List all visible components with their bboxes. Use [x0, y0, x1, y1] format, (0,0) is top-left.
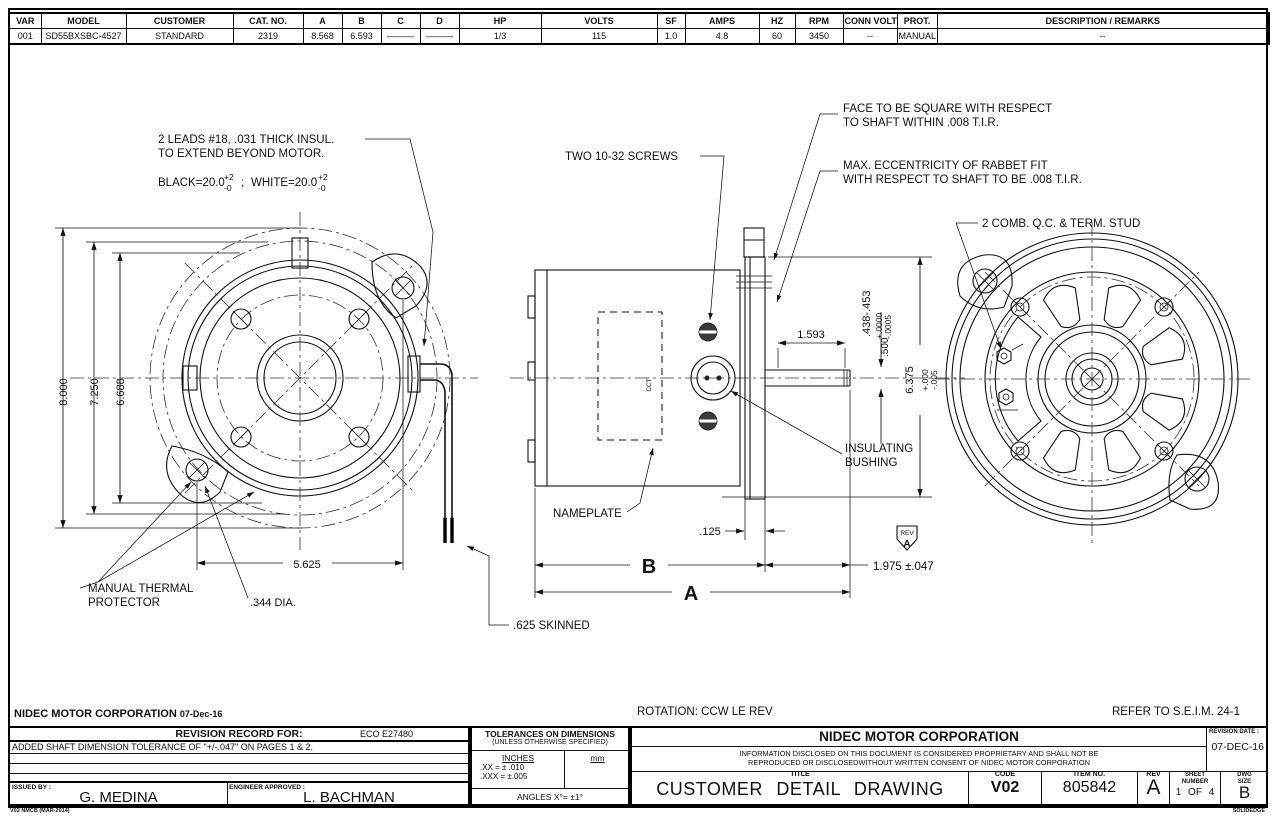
leads-black: BLACK=20.0: [158, 177, 225, 189]
sheet-label-1: SHEET: [1170, 771, 1220, 779]
insulating-label-1: INSULATING: [845, 443, 913, 455]
item-no-label: ITEM NO.: [1042, 771, 1137, 779]
mounting-flange: [736, 228, 772, 499]
mm-label: mm: [590, 753, 604, 763]
tolerance-xx: .XX = ± .010: [472, 763, 564, 772]
revision-flag-letter: A: [903, 539, 910, 550]
leads-semicolon: ;: [241, 177, 244, 189]
dim-1593: 1.593: [797, 329, 825, 341]
terminal-studs: [997, 344, 1023, 410]
dim-7250: 7.250: [89, 378, 101, 406]
leads-line-2: TO EXTEND BEYOND MOTOR.: [158, 148, 324, 160]
title-block-company: NIDEC MOTOR CORPORATION: [632, 728, 1207, 747]
engineer-approved-label: ENGINEER APPROVED :: [229, 784, 305, 791]
tolerances-block: TOLERANCES ON DIMENSIONS (UNLESS OTHERWI…: [470, 726, 630, 806]
leads-black-tol-minus: -0: [224, 183, 232, 193]
dim-438-tol-minus: -.0005: [883, 315, 893, 339]
revision-empty-row: [10, 774, 468, 783]
side-dimensions: 1.593 .438-.453 +.0000 -.0005 .500 6.375…: [535, 257, 939, 605]
revision-flag-label: REV: [900, 530, 914, 537]
issued-by-label: ISSUED BY :: [12, 784, 51, 791]
revision-entry: ADDED SHAFT DIMENSION TOLERANCE OF "+/-.…: [10, 742, 468, 754]
eco-number: ECO E27480: [360, 729, 413, 739]
tolerances-title: TOLERANCES ON DIMENSIONS: [472, 728, 628, 739]
thermal-label-1: MANUAL THERMAL: [88, 583, 194, 595]
sheet-value: 1 OF 4: [1170, 785, 1220, 798]
leads-black-tol-plus: +2: [224, 172, 234, 182]
title-block: NIDEC MOTOR CORPORATION REVISION DATE : …: [630, 726, 1268, 806]
proprietary-line-2: REPRODUCED OR DISCLOSEDWITHOUT WRITTEN C…: [632, 758, 1206, 767]
tolerances-subtitle: (UNLESS OTHERWISE SPECIFIED): [472, 739, 628, 746]
technical-drawing: 8.000 7.250 6.688 5.625 .344 DIA. MANUAL…: [0, 0, 1280, 826]
two-screws-label: TWO 10-32 SCREWS: [565, 151, 678, 163]
nameplate-label: NAMEPLATE: [553, 508, 622, 520]
rev-value: A: [1138, 776, 1169, 800]
eccentricity-label-1: MAX. ECCENTRICITY OF RABBET FIT: [843, 160, 1048, 172]
eccentricity-label-2: WITH RESPECT TO SHAFT TO BE .008 T.I.R.: [843, 174, 1082, 186]
drawing-sheet: VAR MODEL CUSTOMER CAT. NO. A B C D HP V…: [0, 0, 1280, 826]
dim-6688: 6.688: [115, 378, 127, 406]
nameplate-outline: [598, 312, 662, 440]
motor-side-view: CCT: [467, 103, 1082, 632]
skinned-label: .625 SKINNED: [513, 620, 590, 632]
dim-5625: 5.625: [293, 559, 321, 571]
dim-438: .438-.453: [861, 291, 873, 337]
motor-front-view: 8.000 7.250 6.688 5.625 .344 DIA. MANUAL…: [55, 134, 478, 609]
footer-company-line: NIDEC MOTOR CORPORATION 07-Dec-16: [14, 708, 222, 720]
leads-white-tol-plus: +2: [318, 172, 328, 182]
revision-date-value: 07-DEC-16: [1207, 735, 1266, 753]
dim-125: .125: [699, 526, 720, 538]
nameplate-marking: CCT: [646, 378, 653, 391]
drawing-title: CUSTOMER DETAIL DRAWING: [632, 779, 968, 800]
cad-system-stamp: SOLIDEDGE: [1195, 808, 1265, 814]
rotation-note: ROTATION: CCW LE REV: [637, 706, 773, 718]
lead-wires: [408, 356, 452, 543]
dim-344: .344 DIA.: [250, 597, 296, 609]
code-value: V02: [969, 779, 1041, 797]
refer-note: REFER TO S.E.I.M. 24-1: [1112, 706, 1240, 718]
tolerance-xxx: .XXX = ±.005: [472, 772, 564, 781]
dim-A: A: [684, 583, 698, 605]
proprietary-line-1: INFORMATION DISCLOSED ON THIS DOCUMENT I…: [632, 746, 1206, 758]
thermal-label-2: PROTECTOR: [88, 597, 160, 609]
title-label: TITLE: [632, 771, 968, 779]
motor-rear-view: 2 COMB. Q.C. & TERM. STUD: [936, 218, 1252, 546]
side-callouts: TWO 10-32 SCREWS FACE TO BE SQUARE WITH …: [467, 103, 1082, 632]
leads-white-tol-minus: -0: [318, 183, 326, 193]
revision-flag: REV A: [897, 526, 917, 550]
inches-label: INCHES: [502, 753, 534, 763]
dim-8000: 8.000: [58, 378, 70, 406]
form-stamp: V02 NMCB (MAR-2014): [10, 808, 70, 814]
dim-500: .500: [880, 337, 891, 357]
insulating-label-2: BUSHING: [845, 457, 897, 469]
dwg-size-label-1: DWG: [1221, 771, 1268, 779]
footer-company: NIDEC MOTOR CORPORATION: [14, 708, 177, 720]
face-square-label-1: FACE TO BE SQUARE WITH RESPECT: [843, 103, 1052, 115]
leads-line-1: 2 LEADS #18, .031 THICK INSUL.: [158, 134, 334, 146]
dim-6375: 6.375: [904, 366, 916, 394]
comb-label: 2 COMB. Q.C. & TERM. STUD: [982, 218, 1140, 230]
item-no-value: 805842: [1042, 779, 1137, 797]
front-dimensions: 8.000 7.250 6.688 5.625 .344 DIA.: [55, 228, 403, 609]
code-label: CODE: [969, 771, 1041, 779]
leads-white: WHITE=20.0: [251, 177, 317, 189]
revision-empty-row: [10, 764, 468, 774]
dim-B: B: [642, 556, 656, 578]
dim-6375-tol-minus: -.005: [929, 370, 939, 390]
footer-date: 07-Dec-16: [180, 709, 223, 719]
dwg-size-value: B: [1221, 783, 1268, 803]
dim-1975: 1.975 ±.047: [873, 561, 934, 573]
face-square-label-2: TO SHAFT WITHIN .008 T.I.R.: [843, 117, 999, 129]
revision-empty-row: [10, 754, 468, 764]
revision-record-block: REVISION RECORD FOR: ECO E27480 ADDED SH…: [8, 726, 470, 806]
revision-date-label: REVISION DATE :: [1207, 728, 1266, 735]
angles-tolerance: ANGLES X°= ±1°: [472, 789, 628, 805]
